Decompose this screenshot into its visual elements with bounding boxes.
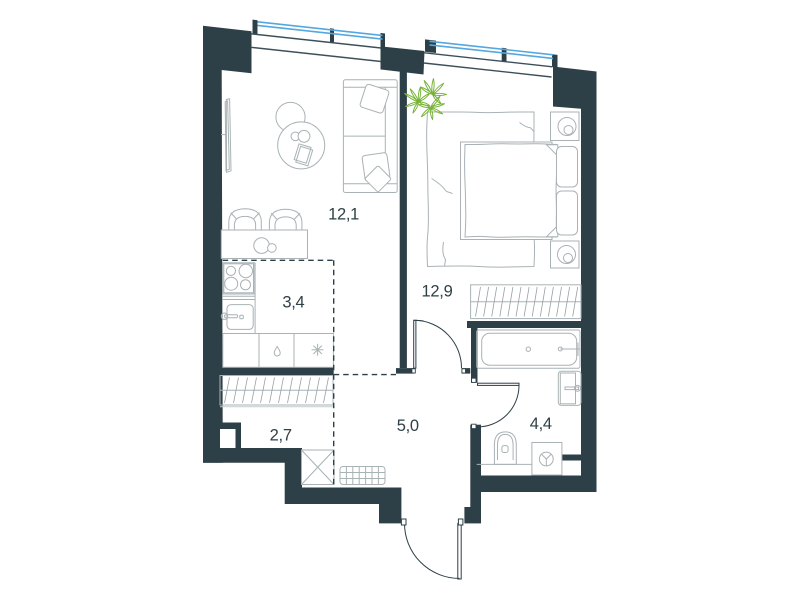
svg-text:12,9: 12,9 [422, 283, 453, 301]
svg-text:5,0: 5,0 [397, 417, 419, 435]
svg-text:3,4: 3,4 [282, 294, 304, 312]
svg-text:12,1: 12,1 [328, 206, 359, 224]
svg-text:2,7: 2,7 [270, 427, 292, 445]
svg-text:4,4: 4,4 [530, 415, 552, 433]
